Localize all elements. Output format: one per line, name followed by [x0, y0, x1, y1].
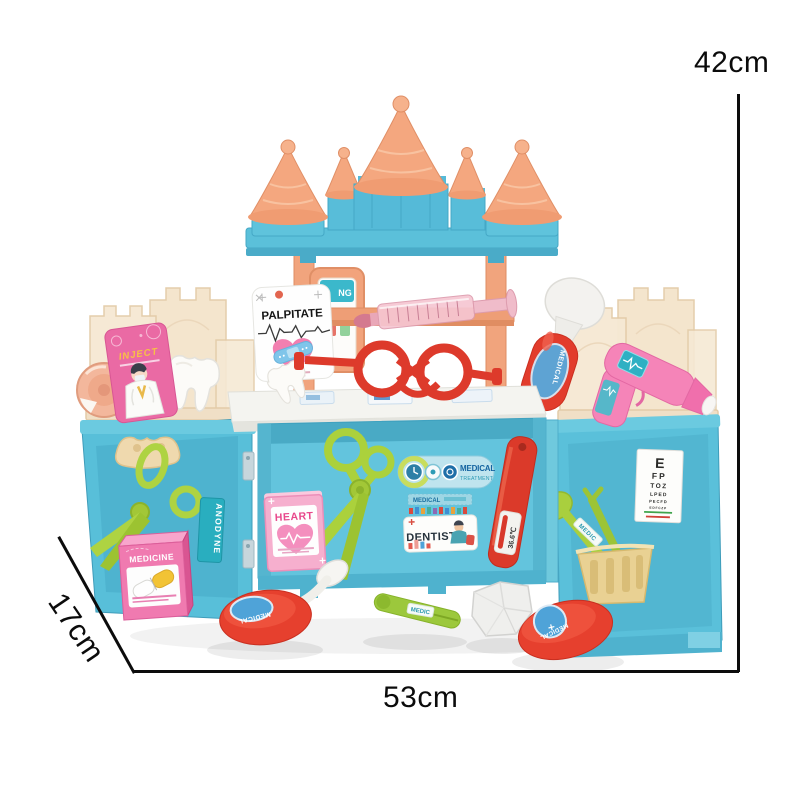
heart-box: HEART — [264, 490, 326, 571]
product-photo: ANODYNE E FP TOZ LPED PECFD EDFCZP — [0, 0, 800, 800]
center-turret — [354, 96, 448, 230]
eye-chart-row: PECFD — [649, 499, 668, 505]
eye-chart-row: EDFCZP — [649, 506, 667, 511]
medical-treatment-line2: TREATMENT — [460, 476, 494, 482]
heart-title: HEART — [275, 510, 314, 524]
medical-treatment-sticker: MEDICAL TREATMENT — [398, 456, 495, 488]
width-dimension-label: 53cm — [383, 681, 458, 715]
eye-chart-row: LPED — [650, 492, 668, 499]
eye-chart-row: FP — [652, 471, 667, 482]
frame-card-text: NG — [338, 288, 352, 298]
height-dimension-label: 42cm — [694, 46, 769, 80]
left-cone — [248, 140, 328, 236]
medical-treatment-line1: MEDICAL — [460, 464, 495, 473]
medicine-box: MEDICINE — [118, 531, 194, 620]
eye-chart-row: E — [655, 455, 665, 471]
small-turret-right — [448, 148, 486, 231]
dimension-line-height — [737, 94, 740, 672]
dimension-line-width — [133, 670, 739, 673]
inject-card: INJECT — [104, 322, 178, 424]
anodyne-label: ANODYNE — [197, 497, 224, 562]
dentist-sticker: DENTIST — [403, 515, 477, 553]
right-cone — [482, 140, 562, 236]
eye-chart: E FP TOZ LPED PECFD EDFCZP — [635, 449, 683, 523]
toy-illustration: ANODYNE E FP TOZ LPED PECFD EDFCZP — [0, 0, 800, 800]
medical-strip-text: MEDICAL — [413, 498, 441, 504]
eye-chart-row: TOZ — [650, 483, 668, 491]
dentist-title: DENTIST — [406, 530, 456, 544]
